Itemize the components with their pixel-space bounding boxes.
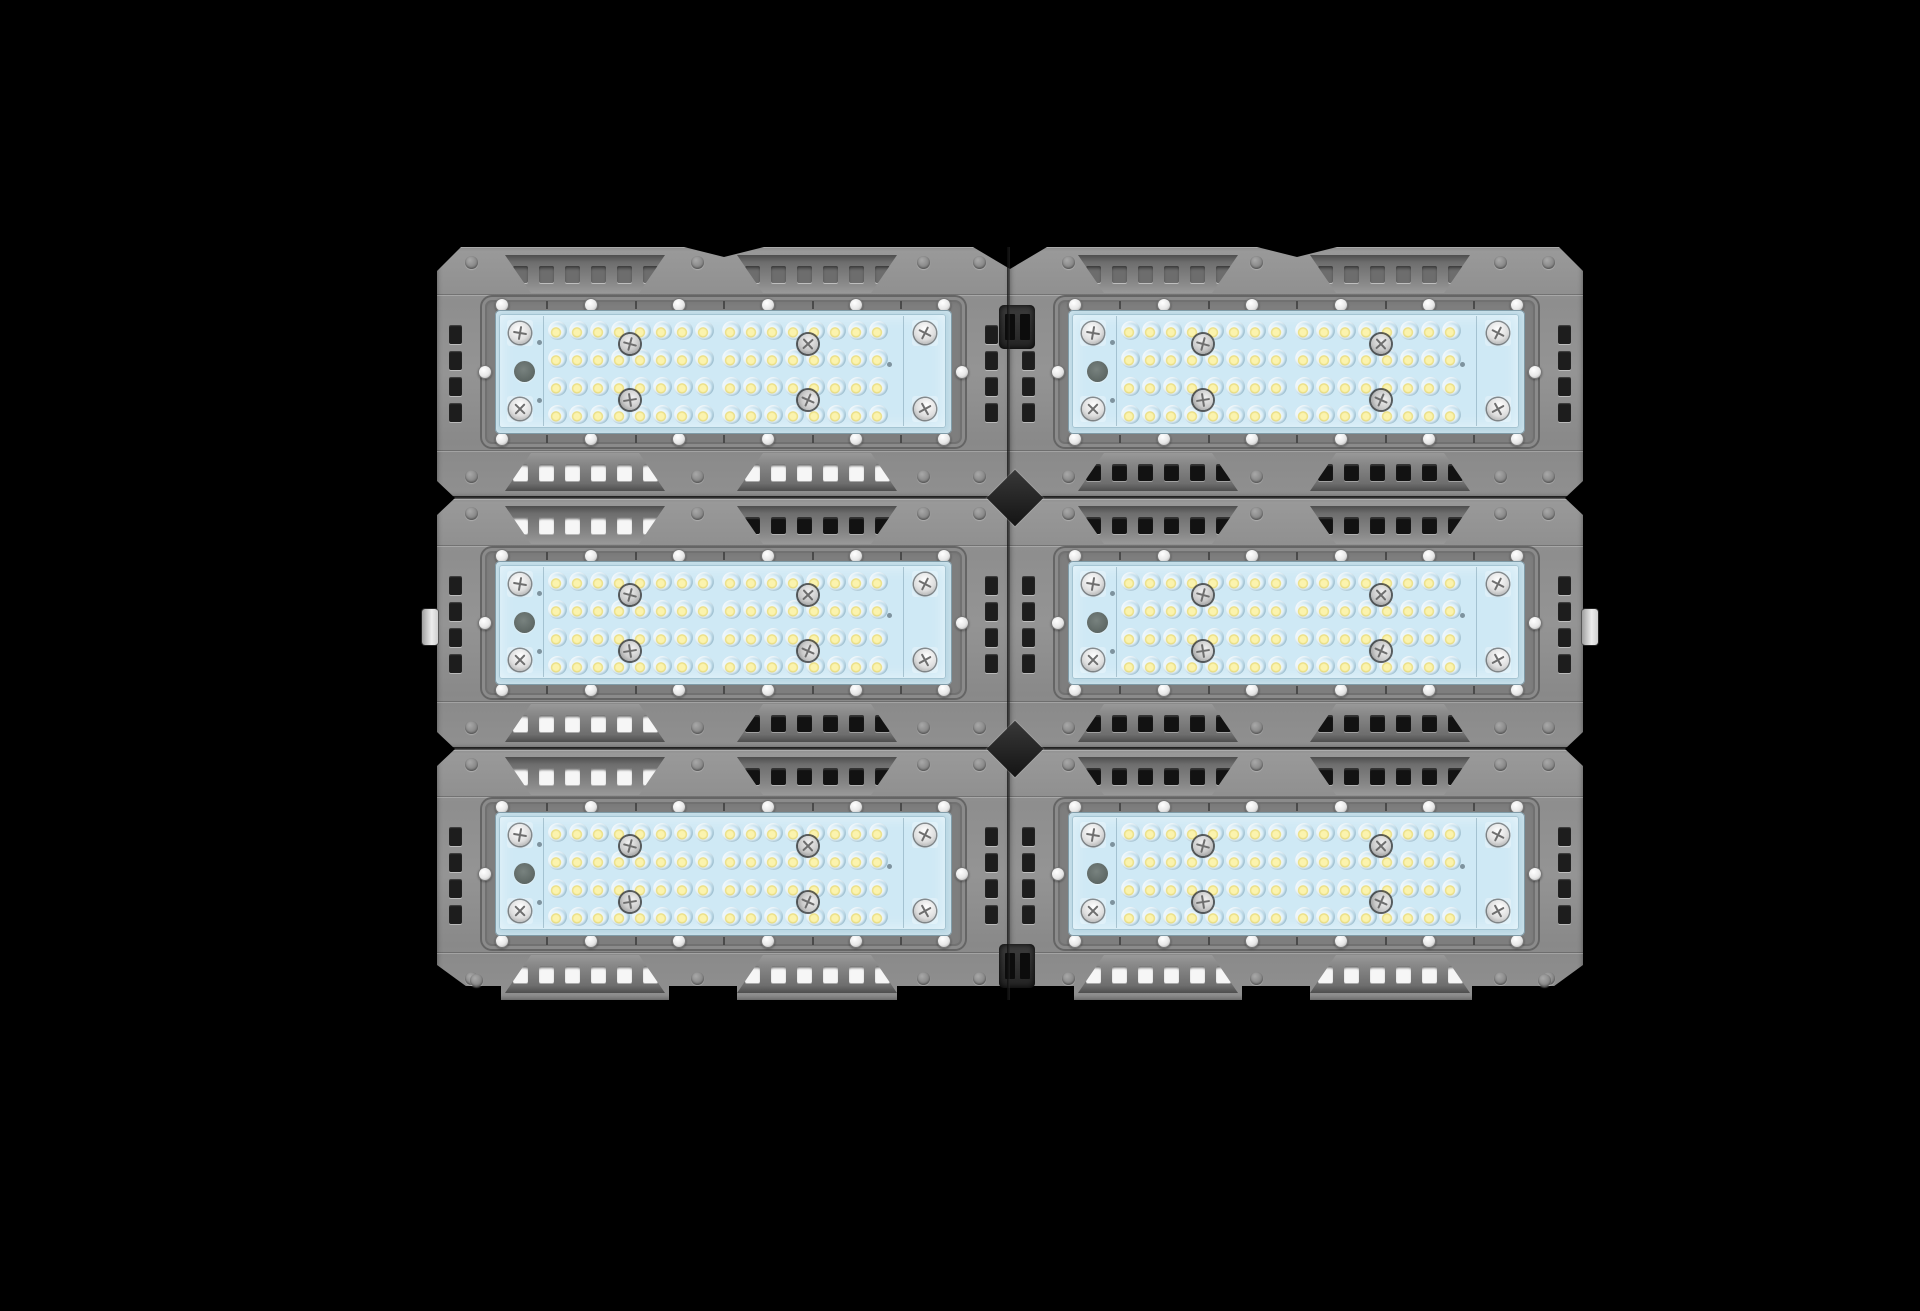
led-lens [1226, 377, 1245, 396]
vent-hole [771, 517, 786, 534]
junction-recess [999, 944, 1035, 988]
glass-cover [1068, 310, 1525, 434]
led-lens [674, 572, 693, 591]
frame-screw [761, 683, 775, 697]
mounting-tab-right [1582, 609, 1598, 645]
side-slot [1558, 628, 1571, 647]
led-module-middle-left [437, 498, 1010, 749]
side-slot [985, 377, 998, 396]
heat-sink-vent [1078, 255, 1238, 293]
led-lens [1121, 823, 1140, 842]
led-lens [1421, 823, 1440, 842]
side-slot [985, 403, 998, 422]
vent-hole [513, 464, 528, 481]
vent-hole [1318, 715, 1333, 732]
led-lens [1142, 349, 1161, 368]
panel-seam [903, 818, 904, 928]
led-lens [1268, 572, 1287, 591]
led-lens [869, 572, 888, 591]
mounting-tab-left [422, 609, 438, 645]
vent-hole [1216, 517, 1231, 534]
vent-hole [1138, 715, 1153, 732]
led-lens [548, 656, 567, 675]
led-lens [764, 907, 783, 926]
led-lens [1226, 349, 1245, 368]
led-lens [743, 628, 762, 647]
vent-hole [823, 768, 838, 785]
frame-screw [1510, 934, 1524, 948]
vent-hole [1422, 266, 1437, 283]
side-slot [1022, 827, 1035, 846]
side-slot [985, 827, 998, 846]
mounting-boss [973, 256, 986, 269]
led-lens [1442, 656, 1461, 675]
led-lens [548, 851, 567, 870]
led-lens [653, 321, 672, 340]
vent-hole [1138, 966, 1153, 983]
led-lens [1226, 600, 1245, 619]
vent-hole [1190, 715, 1205, 732]
led-lens [869, 377, 888, 396]
mounting-boss [973, 758, 986, 771]
led-lens [869, 405, 888, 424]
vent-hole [513, 266, 528, 283]
vent-hole [1190, 266, 1205, 283]
led-lens [569, 656, 588, 675]
vent-hole [771, 715, 786, 732]
vent-hole [617, 768, 632, 785]
led-lens [1337, 405, 1356, 424]
led-lens [722, 879, 741, 898]
vent-hole [1370, 517, 1385, 534]
heat-sink-vent [737, 955, 897, 993]
frame-screw [1510, 683, 1524, 697]
heat-sink-vent [737, 704, 897, 742]
vent-hole [565, 464, 580, 481]
led-lens [548, 321, 567, 340]
frame-screw [937, 683, 951, 697]
mounting-boss [465, 507, 478, 520]
panel-dot [537, 591, 542, 596]
led-lens [1247, 823, 1266, 842]
side-slot [1022, 351, 1035, 370]
vent-hole [1086, 464, 1101, 481]
led-lens [1121, 377, 1140, 396]
led-lens [869, 628, 888, 647]
vent-hole [565, 517, 580, 534]
vent-hole [1318, 517, 1333, 534]
module-frame [1055, 297, 1538, 447]
frame-tick [546, 686, 548, 694]
body-ridge [437, 546, 1010, 547]
frame-screw [849, 683, 863, 697]
led-lens [1337, 879, 1356, 898]
vent-hole [1422, 464, 1437, 481]
led-lens [695, 907, 714, 926]
vent-hole [823, 517, 838, 534]
led-lens [1268, 321, 1287, 340]
led-lens [1226, 907, 1245, 926]
led-lens [1316, 907, 1335, 926]
body-ridge [1010, 797, 1583, 798]
side-slot [1022, 403, 1035, 422]
frame-tick [900, 686, 902, 694]
side-slot [985, 879, 998, 898]
led-lens [1337, 321, 1356, 340]
mounting-boss [1494, 256, 1507, 269]
led-lens [653, 656, 672, 675]
vent-hole [513, 966, 528, 983]
side-slot [449, 377, 462, 396]
vent-hole [617, 266, 632, 283]
vent-hole [745, 715, 760, 732]
vent-hole [539, 464, 554, 481]
vent-hole [875, 715, 890, 732]
frame-tick [1208, 937, 1210, 945]
heat-sink-vent [1310, 453, 1470, 491]
led-lens [590, 572, 609, 591]
led-lens [1337, 823, 1356, 842]
led-lens [1421, 656, 1440, 675]
led-lens [674, 851, 693, 870]
led-lens [743, 321, 762, 340]
frame-tick [546, 552, 548, 560]
mounting-boss [1250, 470, 1263, 483]
led-lens [1316, 405, 1335, 424]
side-slot [985, 325, 998, 344]
frame-screw [955, 616, 969, 630]
led-lens [548, 349, 567, 368]
side-slot [1022, 576, 1035, 595]
led-lens [764, 851, 783, 870]
led-lens [1421, 628, 1440, 647]
frame-screw [1528, 365, 1542, 379]
vent-hole [1164, 768, 1179, 785]
heat-sink-vent [1310, 757, 1470, 795]
frame-tick [1385, 552, 1387, 560]
led-lens [1442, 907, 1461, 926]
led-lens [1316, 572, 1335, 591]
led-lens [1163, 628, 1182, 647]
frame-screw [478, 365, 492, 379]
led-lens [1226, 656, 1245, 675]
side-slot [985, 654, 998, 673]
vent-hole [797, 768, 812, 785]
led-lens [590, 656, 609, 675]
vent-hole [797, 966, 812, 983]
led-lens [1142, 907, 1161, 926]
led-lens [1295, 572, 1314, 591]
led-lens [722, 321, 741, 340]
led-lens [674, 377, 693, 396]
led-lens [569, 405, 588, 424]
led-lens [827, 907, 846, 926]
vent-hole [1318, 768, 1333, 785]
led-lens [695, 851, 714, 870]
vent-hole [1344, 715, 1359, 732]
led-lens [1226, 321, 1245, 340]
mounting-boss [1062, 256, 1075, 269]
mounting-boss [1542, 470, 1555, 483]
frame-tick [546, 937, 548, 945]
led-lens [1295, 321, 1314, 340]
led-lens [869, 656, 888, 675]
frame-tick [812, 803, 814, 811]
panel-seam [1116, 818, 1117, 928]
led-lens [569, 879, 588, 898]
panel-seam [1116, 316, 1117, 426]
vent-hole [745, 464, 760, 481]
vent-hole [1164, 966, 1179, 983]
led-lens [1400, 656, 1419, 675]
mounting-boss [1494, 470, 1507, 483]
led-module-top-right [1010, 247, 1583, 498]
led-lens [764, 600, 783, 619]
mounting-boss [1494, 721, 1507, 734]
led-lens [1337, 600, 1356, 619]
led-lens [548, 823, 567, 842]
frame-tick [635, 803, 637, 811]
body-ridge [437, 953, 1010, 954]
led-lens [1400, 600, 1419, 619]
side-slot [1558, 879, 1571, 898]
glass-cover [1068, 812, 1525, 936]
vent-hole [1112, 715, 1127, 732]
frame-tick [1296, 803, 1298, 811]
led-lens [653, 572, 672, 591]
led-lens [1268, 349, 1287, 368]
panel-seam [1476, 818, 1477, 928]
mounting-boss [691, 470, 704, 483]
led-lens [1142, 405, 1161, 424]
led-lens [674, 628, 693, 647]
panel-seam [903, 316, 904, 426]
led-lens [653, 879, 672, 898]
led-lens [1142, 823, 1161, 842]
panel-dot [537, 340, 542, 345]
frame-screw [1068, 934, 1082, 948]
led-lens [1295, 851, 1314, 870]
bottom-edge-step [437, 986, 501, 1000]
vent-hole [513, 715, 528, 732]
led-lens [653, 907, 672, 926]
panel-dot [537, 398, 542, 403]
vent-hole [1216, 715, 1231, 732]
panel-dot [537, 842, 542, 847]
led-lens [764, 349, 783, 368]
frame-screw [849, 934, 863, 948]
led-module-middle-right [1010, 498, 1583, 749]
led-lens [1295, 656, 1314, 675]
led-lens [743, 405, 762, 424]
vent-hole [1448, 715, 1463, 732]
vent-hole [591, 266, 606, 283]
side-slot [1558, 351, 1571, 370]
frame-screw [1334, 683, 1348, 697]
mounting-boss [1542, 758, 1555, 771]
panel-seam [1476, 567, 1477, 677]
panel-dot [1110, 900, 1115, 905]
led-lens [695, 405, 714, 424]
led-lens [848, 907, 867, 926]
frame-screw [955, 365, 969, 379]
frame-screw [584, 432, 598, 446]
led-lens [1121, 405, 1140, 424]
panel-dot [887, 362, 892, 367]
frame-tick [723, 686, 725, 694]
vent-hole [1344, 966, 1359, 983]
junction-recess [999, 305, 1035, 349]
mounting-boss [917, 470, 930, 483]
vent-hole [565, 768, 580, 785]
vent-hole [1422, 715, 1437, 732]
bottom-edge-step [669, 986, 737, 1000]
led-lens [848, 349, 867, 368]
frame-tick [812, 552, 814, 560]
glass-cover [495, 310, 952, 434]
led-lens [1163, 405, 1182, 424]
module-seam-vertical [1007, 247, 1010, 1000]
frame-tick [1119, 937, 1121, 945]
frame-screw [849, 432, 863, 446]
corner-boss [470, 974, 483, 987]
vent-hole [823, 966, 838, 983]
frame-tick [900, 552, 902, 560]
frame-tick [1296, 301, 1298, 309]
panel-dot [1110, 591, 1115, 596]
vent-hole [849, 966, 864, 983]
frame-tick [635, 301, 637, 309]
mounting-boss [465, 721, 478, 734]
led-lens [827, 600, 846, 619]
led-lens [1442, 600, 1461, 619]
led-lens [569, 907, 588, 926]
led-lens [1268, 600, 1287, 619]
led-lens [590, 600, 609, 619]
frame-screw [955, 867, 969, 881]
side-slot [985, 351, 998, 370]
heat-sink-vent [505, 453, 665, 491]
vent-hole [745, 966, 760, 983]
frame-screw [1051, 867, 1065, 881]
led-lens [1316, 879, 1335, 898]
frame-tick [1208, 552, 1210, 560]
vent-hole [1112, 966, 1127, 983]
bottom-edge-step [897, 986, 1074, 1000]
heat-sink-vent [1078, 955, 1238, 993]
frame-tick [900, 435, 902, 443]
led-lens [1316, 600, 1335, 619]
vent-hole [1216, 768, 1231, 785]
vent-hole [1370, 768, 1385, 785]
led-lens [1400, 851, 1419, 870]
led-lens [1400, 823, 1419, 842]
vent-hole [745, 517, 760, 534]
led-lens [1247, 656, 1266, 675]
led-lens [827, 656, 846, 675]
led-lens [764, 321, 783, 340]
side-slot [1022, 377, 1035, 396]
led-lens [1295, 907, 1314, 926]
body-ridge [437, 702, 1010, 703]
vent-hole [539, 266, 554, 283]
led-lens [1121, 879, 1140, 898]
vent-hole [617, 517, 632, 534]
vent-hole [1164, 715, 1179, 732]
vent-hole [565, 266, 580, 283]
vent-hole [1370, 266, 1385, 283]
heat-sink-vent [1310, 704, 1470, 742]
led-lens [1268, 851, 1287, 870]
mounting-boss [1542, 256, 1555, 269]
heat-sink-vent [505, 704, 665, 742]
module-frame [482, 548, 965, 698]
frame-screw [937, 934, 951, 948]
led-lens [1442, 851, 1461, 870]
mounting-boss [973, 972, 986, 985]
led-lens [1142, 377, 1161, 396]
led-lens [743, 656, 762, 675]
led-lens [590, 321, 609, 340]
led-lens [1316, 823, 1335, 842]
glass-cover [495, 561, 952, 685]
led-lens [722, 907, 741, 926]
led-lens [1295, 600, 1314, 619]
led-lens [653, 405, 672, 424]
vent-hole [1138, 517, 1153, 534]
vent-hole [1396, 768, 1411, 785]
frame-tick [1296, 686, 1298, 694]
side-slot [449, 654, 462, 673]
frame-screw [584, 683, 598, 697]
mounting-boss [465, 758, 478, 771]
heat-sink-vent [1310, 955, 1470, 993]
vent-hole [1216, 266, 1231, 283]
mounting-boss [1250, 758, 1263, 771]
led-lens [1121, 628, 1140, 647]
side-slot [985, 602, 998, 621]
led-lens [695, 349, 714, 368]
frame-tick [812, 435, 814, 443]
led-lens [1247, 405, 1266, 424]
vent-hole [617, 715, 632, 732]
led-lens [1163, 851, 1182, 870]
mounting-boss [1062, 507, 1075, 520]
panel-seam [1476, 316, 1477, 426]
led-module-bottom-right [1010, 749, 1583, 1000]
led-lens [1316, 656, 1335, 675]
frame-tick [1208, 686, 1210, 694]
led-lens [1421, 879, 1440, 898]
frame-screw [1157, 934, 1171, 948]
vent-hole [539, 517, 554, 534]
bottom-edge-step [1242, 986, 1310, 1000]
led-lens [869, 349, 888, 368]
side-slot [1558, 654, 1571, 673]
frame-screw [672, 683, 686, 697]
vent-hole [1190, 464, 1205, 481]
frame-screw [1528, 616, 1542, 630]
frame-screw [478, 867, 492, 881]
led-lens [1247, 572, 1266, 591]
frame-tick [1385, 301, 1387, 309]
side-slot [449, 576, 462, 595]
led-lens [1121, 656, 1140, 675]
vent-hole [1344, 266, 1359, 283]
side-slot [449, 905, 462, 924]
frame-tick [546, 803, 548, 811]
led-panel [499, 816, 946, 930]
